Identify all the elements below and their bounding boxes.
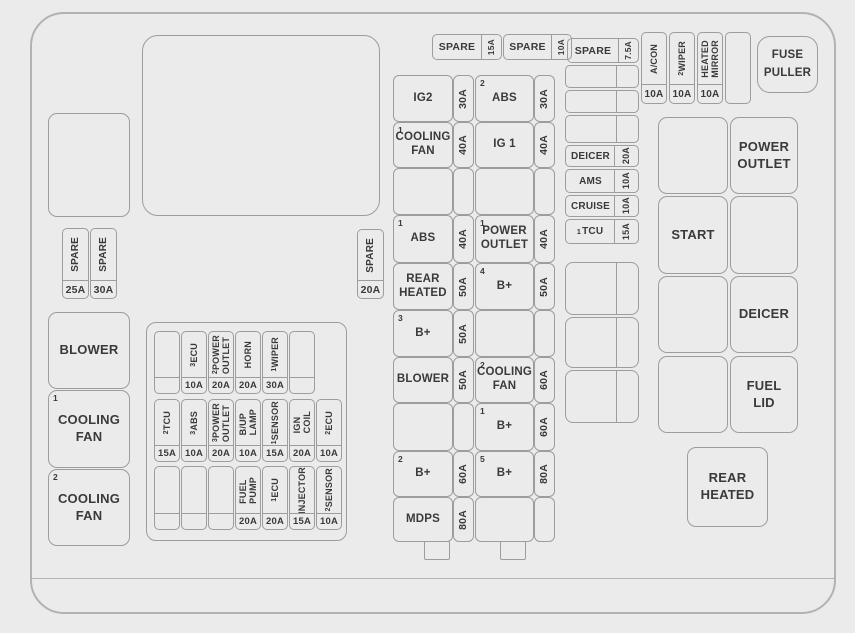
spare-label: SPARE xyxy=(433,35,481,59)
fuse-box-blower: BLOWER xyxy=(48,312,130,389)
amp-cell: 15A xyxy=(263,445,287,461)
spare-label: SPARE xyxy=(568,39,618,62)
relay-box-large-empty xyxy=(142,35,380,216)
amp-cell: 50A xyxy=(453,263,474,310)
fuse-abs-2: 2ABS xyxy=(475,75,534,122)
fuse-label: POWER OUTLET xyxy=(211,403,231,442)
relay-empty xyxy=(730,196,798,274)
amp-cell: 40A xyxy=(453,122,474,168)
empty-fuse-slot xyxy=(565,115,639,143)
amp-cell: 30A xyxy=(534,75,555,122)
fuse-injector: INJECTOR 15A xyxy=(289,466,315,530)
fuse-power-outlet-3: 3POWER OUTLET 20A xyxy=(208,399,234,462)
amp-cell: 10A xyxy=(642,84,666,103)
bottom-strip-divider xyxy=(32,578,834,579)
fuse-label: DEICER xyxy=(571,151,610,162)
spare-fuse-30a: SPARE 30A xyxy=(90,228,117,299)
amp-cell: 10A xyxy=(317,513,341,529)
amp-cell: 10A xyxy=(614,196,638,216)
fuse-label: ABS xyxy=(189,411,199,431)
empty-fuse-slot xyxy=(725,32,751,104)
spare-label: SPARE xyxy=(365,238,376,273)
empty-cell xyxy=(534,168,555,215)
spare-label: SPARE xyxy=(98,237,109,272)
amp-cell: 30A xyxy=(263,377,287,393)
amp-cell: 10A xyxy=(614,170,638,192)
amp-cell: 10A xyxy=(670,84,694,103)
amp-cell: 10A xyxy=(236,445,260,461)
fuse-label: WIPER xyxy=(270,337,280,368)
relay-start: START xyxy=(658,196,728,274)
fuse-box-diagram: SPARE 15A SPARE 10A SPARE 7.5A DEICER 20… xyxy=(0,0,855,633)
fuse-b-plus-5: 5B+ xyxy=(475,451,534,497)
mount-tab xyxy=(500,541,526,560)
relay-power-outlet: POWER OUTLET xyxy=(730,117,798,194)
fuse-abs-3: 3ABS 10A xyxy=(181,399,207,462)
fuse-b-plus-4: 4B+ xyxy=(475,263,534,310)
relay-empty xyxy=(658,117,728,194)
fuse-b-plus-2: 2B+ xyxy=(393,451,453,497)
fuse-label: POWER OUTLET xyxy=(211,335,231,374)
fuse-cooling-fan-2: 2COOLING FAN xyxy=(475,357,534,403)
fuse-label: FUEL PUMP xyxy=(238,477,258,504)
empty-cell xyxy=(534,310,555,357)
relay-empty xyxy=(658,276,728,353)
fuse-label: AMS xyxy=(579,176,602,187)
fuse-ig2: IG2 xyxy=(393,75,453,122)
divider xyxy=(616,116,617,142)
empty-cell xyxy=(453,403,474,451)
relay-deicer: DEICER xyxy=(730,276,798,353)
amp-cell: 20A xyxy=(236,377,260,393)
amp-cell: 20A xyxy=(209,377,233,393)
fuse-rear-heated: REAR HEATED xyxy=(393,263,453,310)
fuse-power-outlet-1: 1POWER OUTLET xyxy=(475,215,534,263)
fuse-backup-lamp: B/UP LAMP 10A xyxy=(235,399,261,462)
relay-fuel-lid: FUEL LID xyxy=(730,356,798,433)
spare-fuse-10a: SPARE 10A xyxy=(503,34,572,60)
amp-cell: 30A xyxy=(91,280,116,298)
empty-fuse-slot xyxy=(289,331,315,394)
fuse-a-con: A/CON 10A xyxy=(641,32,667,104)
fuse-label: ECU xyxy=(189,343,199,363)
amp-cell: 40A xyxy=(534,215,555,263)
empty-fuse-slot xyxy=(181,466,207,530)
fuse-cooling-fan-1: 1COOLING FAN xyxy=(393,122,453,168)
divider xyxy=(616,318,617,367)
fuse-box-cooling-fan-2: 2COOLING FAN xyxy=(48,469,130,546)
empty-fuse-slot xyxy=(208,466,234,530)
fuse-ecu-3: 3ECU 10A xyxy=(181,331,207,394)
spare-label: SPARE xyxy=(70,237,81,272)
fuse-label: WIPER xyxy=(677,41,687,72)
fuse-fuel-pump: FUEL PUMP 20A xyxy=(235,466,261,530)
fuse-label: B/UP LAMP xyxy=(238,409,258,435)
spare-fuse-20a: SPARE 20A xyxy=(357,229,384,299)
relay-rear-heated: REAR HEATED xyxy=(687,447,768,527)
empty-cell xyxy=(475,168,534,215)
amp-cell: 10A xyxy=(182,445,206,461)
empty-cell xyxy=(534,497,555,542)
box-label: COOLING FAN xyxy=(58,491,120,525)
fuse-ign-coil: IGN COIL 20A xyxy=(289,399,315,462)
fuse-label: A/CON xyxy=(649,44,659,74)
amp-cell: 40A xyxy=(453,215,474,263)
empty-cell xyxy=(475,497,534,542)
amp-cell: 15A xyxy=(481,35,501,59)
fuse-mdps: MDPS xyxy=(393,497,453,542)
amp-cell: 10A xyxy=(182,377,206,393)
amp-cell: 10A xyxy=(698,84,722,103)
fuse-label: ECU xyxy=(270,478,280,498)
fuse-label: HORN xyxy=(243,341,253,368)
fuse-label: TCU xyxy=(582,226,603,237)
empty-cell xyxy=(475,310,534,357)
fuse-ig1: IG 1 xyxy=(475,122,534,168)
relay-box-small-empty xyxy=(48,113,130,217)
empty-cell xyxy=(393,403,453,451)
empty-fuse-slot xyxy=(565,90,639,113)
amp-cell: 40A xyxy=(534,122,555,168)
empty-cell xyxy=(453,168,474,215)
fuse-ams: AMS 10A xyxy=(565,169,639,193)
fuse-b-plus-3: 3B+ xyxy=(393,310,453,357)
fuse-ecu-1: 1ECU 20A xyxy=(262,466,288,530)
fuse-deicer: DEICER 20A xyxy=(565,145,639,167)
amp-cell: 80A xyxy=(453,497,474,542)
amp-cell: 20A xyxy=(358,280,383,298)
fuse-label: ECU xyxy=(324,411,334,431)
amp-cell: 50A xyxy=(534,263,555,310)
fuse-tcu-1: 1TCU 15A xyxy=(565,219,639,244)
amp-cell: 7.5A xyxy=(618,39,638,62)
amp-cell: 60A xyxy=(534,357,555,403)
fuse-puller: FUSE PULLER xyxy=(757,36,818,93)
amp-cell: 10A xyxy=(317,445,341,461)
fuse-b-plus-1: 1B+ xyxy=(475,403,534,451)
empty-fuse-slot xyxy=(565,370,639,423)
amp-cell: 50A xyxy=(453,310,474,357)
amp-cell: 60A xyxy=(534,403,555,451)
amp-cell: 20A xyxy=(290,445,314,461)
divider xyxy=(616,371,617,422)
empty-cell xyxy=(393,168,453,215)
fuse-label: HEATED MIRROR xyxy=(700,40,720,78)
center-fuse-block: 3ECU 10A 2POWER OUTLET 20A HORN 20A 1WIP… xyxy=(146,322,347,541)
mount-tab xyxy=(424,541,450,560)
empty-fuse-slot xyxy=(154,466,180,530)
empty-fuse-slot xyxy=(565,317,639,368)
amp-cell: 50A xyxy=(453,357,474,403)
amp-cell: 25A xyxy=(63,280,88,298)
amp-cell: 15A xyxy=(614,220,638,243)
fuse-wiper-1: 1WIPER 30A xyxy=(262,331,288,394)
spare-fuse-15a: SPARE 15A xyxy=(432,34,502,60)
amp-cell: 20A xyxy=(614,146,638,166)
fuse-sensor-2: 2SENSOR 10A xyxy=(316,466,342,530)
amp-cell: 60A xyxy=(453,451,474,497)
fuse-box-cooling-fan-1: 1COOLING FAN xyxy=(48,390,130,468)
fuse-label: TCU xyxy=(162,411,172,430)
fuse-horn: HORN 20A xyxy=(235,331,261,394)
fuse-label: SENSOR xyxy=(270,401,280,440)
amp-cell: 15A xyxy=(155,445,179,461)
amp-cell: 15A xyxy=(290,513,314,529)
fuse-ecu-2: 2ECU 10A xyxy=(316,399,342,462)
fuse-cruise: CRUISE 10A xyxy=(565,195,639,217)
amp-cell: 20A xyxy=(236,513,260,529)
empty-fuse-slot xyxy=(565,65,639,88)
fuse-label: CRUISE xyxy=(571,201,610,212)
divider xyxy=(616,263,617,314)
fuse-power-outlet-2: 2POWER OUTLET 20A xyxy=(208,331,234,394)
divider xyxy=(616,91,617,112)
empty-fuse-slot xyxy=(565,262,639,315)
box-label: COOLING FAN xyxy=(58,412,120,446)
relay-empty xyxy=(658,356,728,433)
fuse-heated-mirror: HEATED MIRROR 10A xyxy=(697,32,723,104)
amp-cell: 30A xyxy=(453,75,474,122)
box-label: BLOWER xyxy=(60,342,119,359)
fuse-sensor-1: 1SENSOR 15A xyxy=(262,399,288,462)
amp-cell: 20A xyxy=(263,513,287,529)
fuse-label: INJECTOR xyxy=(297,467,307,513)
amp-cell: 20A xyxy=(209,445,233,461)
empty-fuse-slot xyxy=(154,331,180,394)
spare-fuse-7-5a: SPARE 7.5A xyxy=(567,38,639,63)
divider xyxy=(616,66,617,87)
fuse-label: SENSOR xyxy=(324,468,334,507)
fuse-label: IGN COIL xyxy=(292,411,312,433)
fuse-wiper-2: 2WIPER 10A xyxy=(669,32,695,104)
fuse-tcu-2: 2TCU 15A xyxy=(154,399,180,462)
amp-cell: 80A xyxy=(534,451,555,497)
fuse-abs-1: 1ABS xyxy=(393,215,453,263)
fuse-blower: BLOWER xyxy=(393,357,453,403)
spare-fuse-25a: SPARE 25A xyxy=(62,228,89,299)
spare-label: SPARE xyxy=(504,35,551,59)
